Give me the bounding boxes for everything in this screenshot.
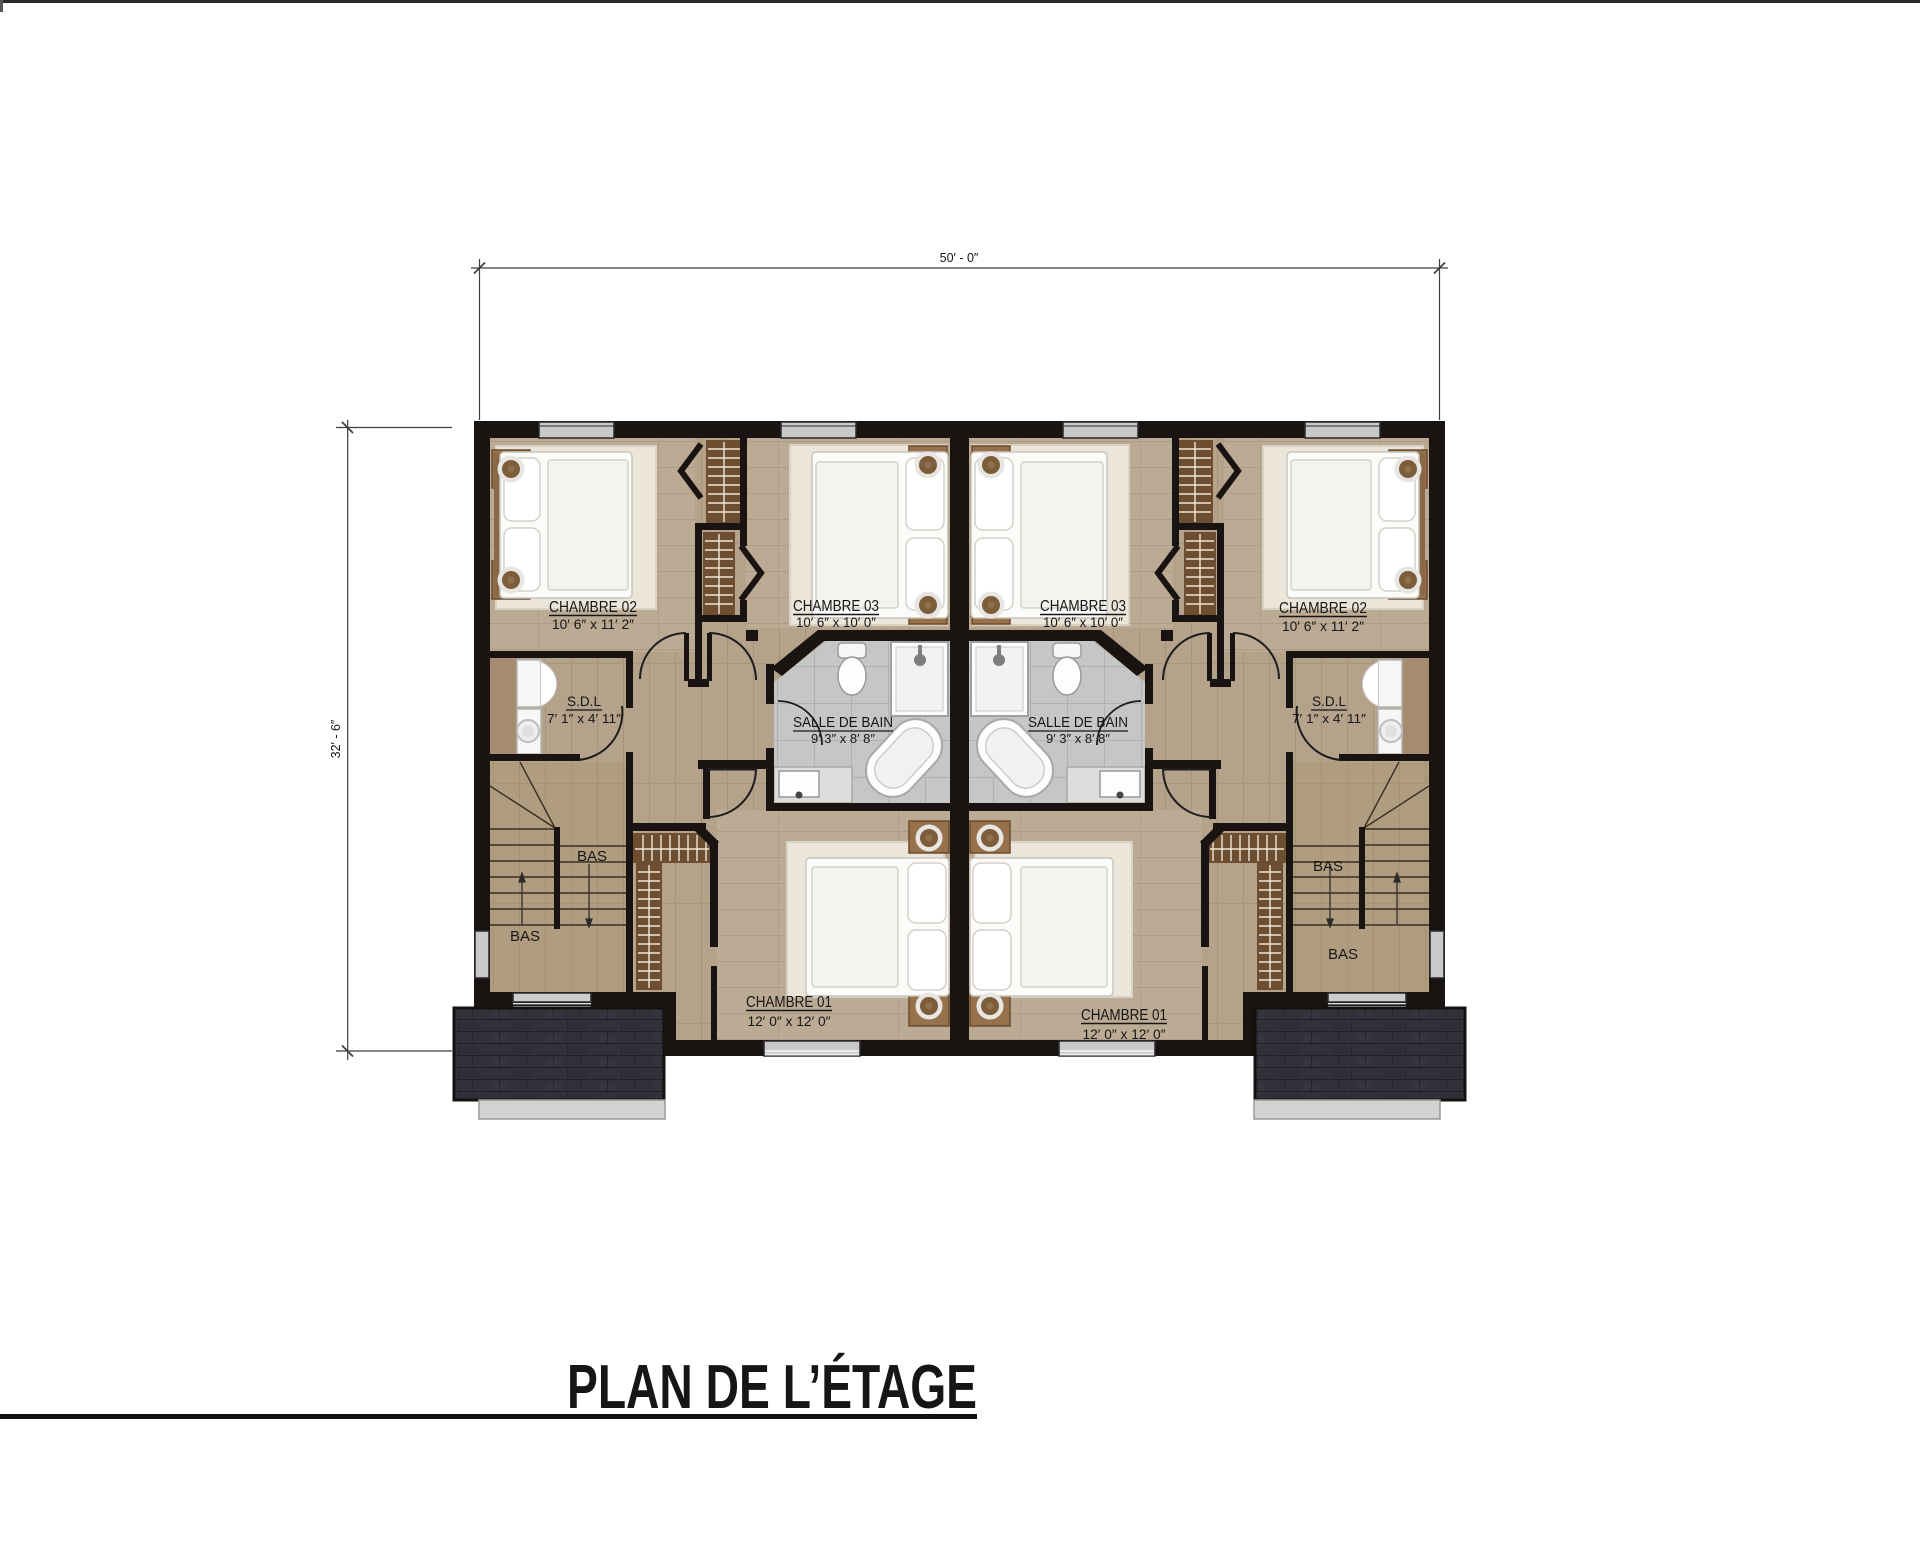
svg-text:CHAMBRE 01: CHAMBRE 01 bbox=[1081, 1007, 1167, 1024]
svg-text:SALLE DE BAIN: SALLE DE BAIN bbox=[793, 715, 893, 731]
svg-text:CHAMBRE 01: CHAMBRE 01 bbox=[746, 994, 832, 1011]
svg-text:CHAMBRE 03: CHAMBRE 03 bbox=[1040, 598, 1126, 615]
svg-text:CHAMBRE 02: CHAMBRE 02 bbox=[1279, 600, 1367, 617]
svg-text:10′ 6″ x 11′ 2″: 10′ 6″ x 11′ 2″ bbox=[552, 616, 634, 632]
svg-text:SALLE DE BAIN: SALLE DE BAIN bbox=[1028, 715, 1128, 731]
svg-text:7′ 1″ x 4′ 11″: 7′ 1″ x 4′ 11″ bbox=[547, 711, 621, 726]
svg-text:50′ - 0″: 50′ - 0″ bbox=[940, 251, 979, 265]
svg-text:10′ 6″ x 10′ 0″: 10′ 6″ x 10′ 0″ bbox=[796, 614, 876, 630]
svg-text:32′ - 6″: 32′ - 6″ bbox=[329, 719, 343, 758]
svg-text:BAS: BAS bbox=[1328, 946, 1358, 963]
svg-text:CHAMBRE 03: CHAMBRE 03 bbox=[793, 598, 879, 615]
svg-text:S.D.L: S.D.L bbox=[567, 693, 601, 709]
svg-text:BAS: BAS bbox=[510, 928, 540, 945]
svg-text:9′ 3″ x 8′ 8″: 9′ 3″ x 8′ 8″ bbox=[811, 731, 875, 746]
svg-text:S.D.L: S.D.L bbox=[1312, 693, 1346, 709]
svg-text:12′ 0″ x 12′ 0″: 12′ 0″ x 12′ 0″ bbox=[748, 1013, 831, 1029]
svg-text:7′ 1″ x 4′ 11″: 7′ 1″ x 4′ 11″ bbox=[1292, 711, 1366, 726]
svg-text:PLAN DE L’ÉTAGE: PLAN DE L’ÉTAGE bbox=[567, 1353, 977, 1422]
svg-text:10′ 6″ x 11′ 2″: 10′ 6″ x 11′ 2″ bbox=[1282, 618, 1364, 634]
svg-text:9′ 3″ x 8′ 8″: 9′ 3″ x 8′ 8″ bbox=[1046, 731, 1110, 746]
svg-text:BAS: BAS bbox=[577, 848, 607, 865]
svg-text:10′ 6″ x 10′ 0″: 10′ 6″ x 10′ 0″ bbox=[1043, 614, 1123, 630]
svg-text:12′ 0″ x 12′ 0″: 12′ 0″ x 12′ 0″ bbox=[1083, 1026, 1166, 1042]
svg-text:BAS: BAS bbox=[1313, 858, 1343, 875]
svg-text:CHAMBRE 02: CHAMBRE 02 bbox=[549, 599, 637, 616]
